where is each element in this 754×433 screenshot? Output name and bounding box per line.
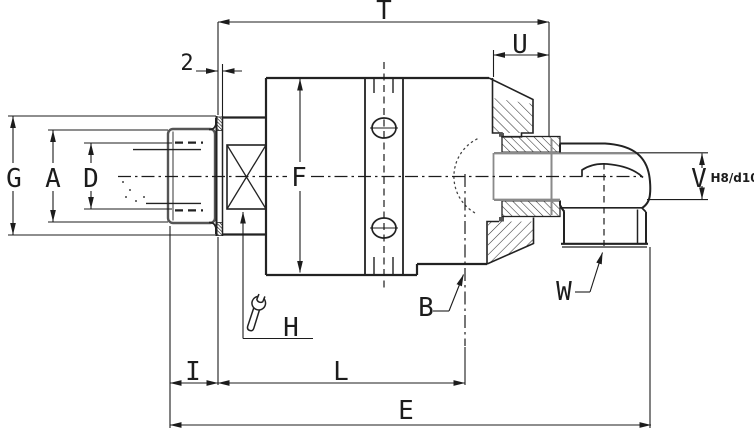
dim-label-i: I <box>185 357 201 387</box>
dimension-labels: T U 2 G A D F I L E V B W H H8/d10 <box>6 0 754 426</box>
dim-label-l: L <box>333 357 349 387</box>
break-line-dots <box>122 181 145 202</box>
dim-label-g: G <box>6 164 22 194</box>
fit-spec-label: H8/d10 <box>711 171 754 185</box>
dimension-lines <box>13 22 702 425</box>
wrench-icon <box>242 293 269 333</box>
leader-W <box>590 253 603 293</box>
dim-label-f: F <box>291 163 307 193</box>
dim-label-u: U <box>512 30 528 60</box>
dim-label-v: V <box>691 164 707 194</box>
dim-label-t: T <box>376 0 392 26</box>
dim-label-e: E <box>398 396 414 426</box>
callout-label-b: B <box>418 293 434 323</box>
dim-label-a: A <box>45 164 61 194</box>
callout-label-w: W <box>556 277 572 307</box>
gland-nut-top <box>489 78 533 137</box>
extension-lines <box>8 22 708 428</box>
dim-label-flange-width: 2 <box>180 51 193 76</box>
leader-B <box>449 275 464 312</box>
dim-label-d: D <box>83 164 99 194</box>
elbow-fitting <box>560 144 650 248</box>
gland-nut-bottom <box>487 217 534 264</box>
technical-drawing-canvas: T U 2 G A D F I L E V B W H H8/d10 <box>0 0 754 433</box>
rotary-joint-section-drawing: T U 2 G A D F I L E V B W H H8/d10 <box>0 0 754 433</box>
callout-label-h: H <box>283 313 299 343</box>
